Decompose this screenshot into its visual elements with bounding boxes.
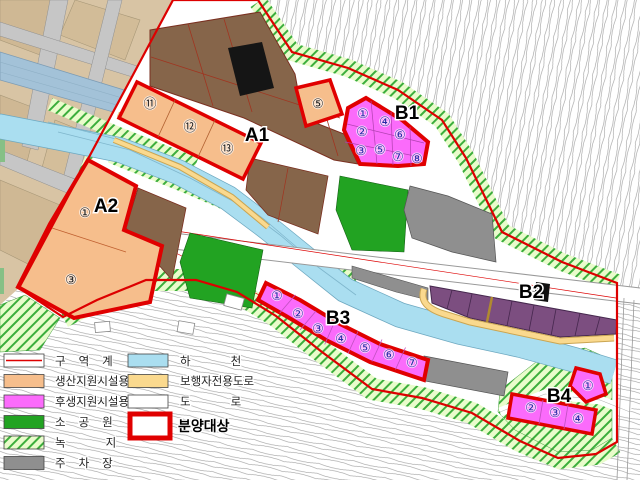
parcel-number: ⑫	[183, 119, 196, 134]
legend-swatch-river	[128, 354, 168, 367]
legend-label: 구역계	[55, 355, 126, 368]
legend-label: 생산지원시설용지	[55, 374, 140, 388]
parcel-number: ③	[549, 405, 561, 420]
parcel-number: ⑧	[411, 151, 423, 166]
legend-label: 하천	[180, 354, 281, 368]
parcel-number: ②	[356, 124, 368, 139]
parcel-number: ⑪	[143, 96, 156, 111]
legend-swatch-green-belt	[4, 436, 44, 449]
legend-label: 후생지원시설용지	[55, 395, 140, 409]
zone-label-a1: A1	[245, 125, 270, 146]
parcel-number: ⑤	[359, 340, 371, 355]
legend-swatch-road	[128, 395, 168, 408]
legend-swatch-parking	[4, 457, 44, 470]
parcel-number: ③	[65, 272, 77, 287]
legend-swatch-district-boundary	[4, 354, 44, 367]
parcel-number: ⑤	[374, 142, 386, 157]
legend-label: 주차장	[55, 457, 126, 470]
legend-swatch-small-park	[4, 416, 44, 429]
legend-swatch-sale-target	[130, 414, 170, 438]
parcel-number: ⑦	[392, 149, 404, 164]
land-use-plan-map: A1 A2 B1 B2 B3 B4 ⑪ ⑫ ⑬ ⑤ ① ③ ① ② ③ ④ ⑤ …	[0, 0, 640, 480]
legend-swatch-welfare-support	[4, 395, 44, 408]
parcel-number: ①	[582, 378, 594, 393]
parcel-number: ①	[79, 205, 91, 220]
parcel-number: ③	[312, 321, 324, 336]
parcel-number: ⑬	[220, 141, 233, 156]
parcel-number: ④	[335, 331, 347, 346]
parcel-number: ⑦	[406, 355, 418, 370]
zone-label-b4: B4	[547, 386, 572, 407]
parcel-number: ⑤	[312, 96, 324, 111]
legend-label-sale-target: 분양대상	[178, 418, 230, 434]
legend-label: 소공원	[55, 415, 126, 429]
parcel-number: ④	[572, 411, 584, 426]
legend-swatch-pedestrian-road	[128, 375, 168, 388]
parcel-number: ④	[379, 114, 391, 129]
zone-label-b1: B1	[395, 103, 420, 124]
zone-label-b2: B2	[519, 282, 543, 303]
zone-label-a2: A2	[94, 196, 118, 217]
parcel-number: ①	[357, 106, 369, 121]
legend-swatch-production-support	[4, 375, 44, 388]
parcel-number: ⑥	[383, 347, 395, 362]
parcel-number: ①	[271, 288, 283, 303]
parcel-number: ②	[525, 400, 537, 415]
legend-label: 도로	[180, 397, 281, 409]
parcel-number: ②	[292, 306, 304, 321]
parcel-number: ③	[355, 143, 367, 158]
parcel-number: ⑥	[394, 127, 406, 142]
zone-label-b3: B3	[326, 308, 350, 329]
legend-label: 보행자전용도로	[180, 375, 254, 388]
